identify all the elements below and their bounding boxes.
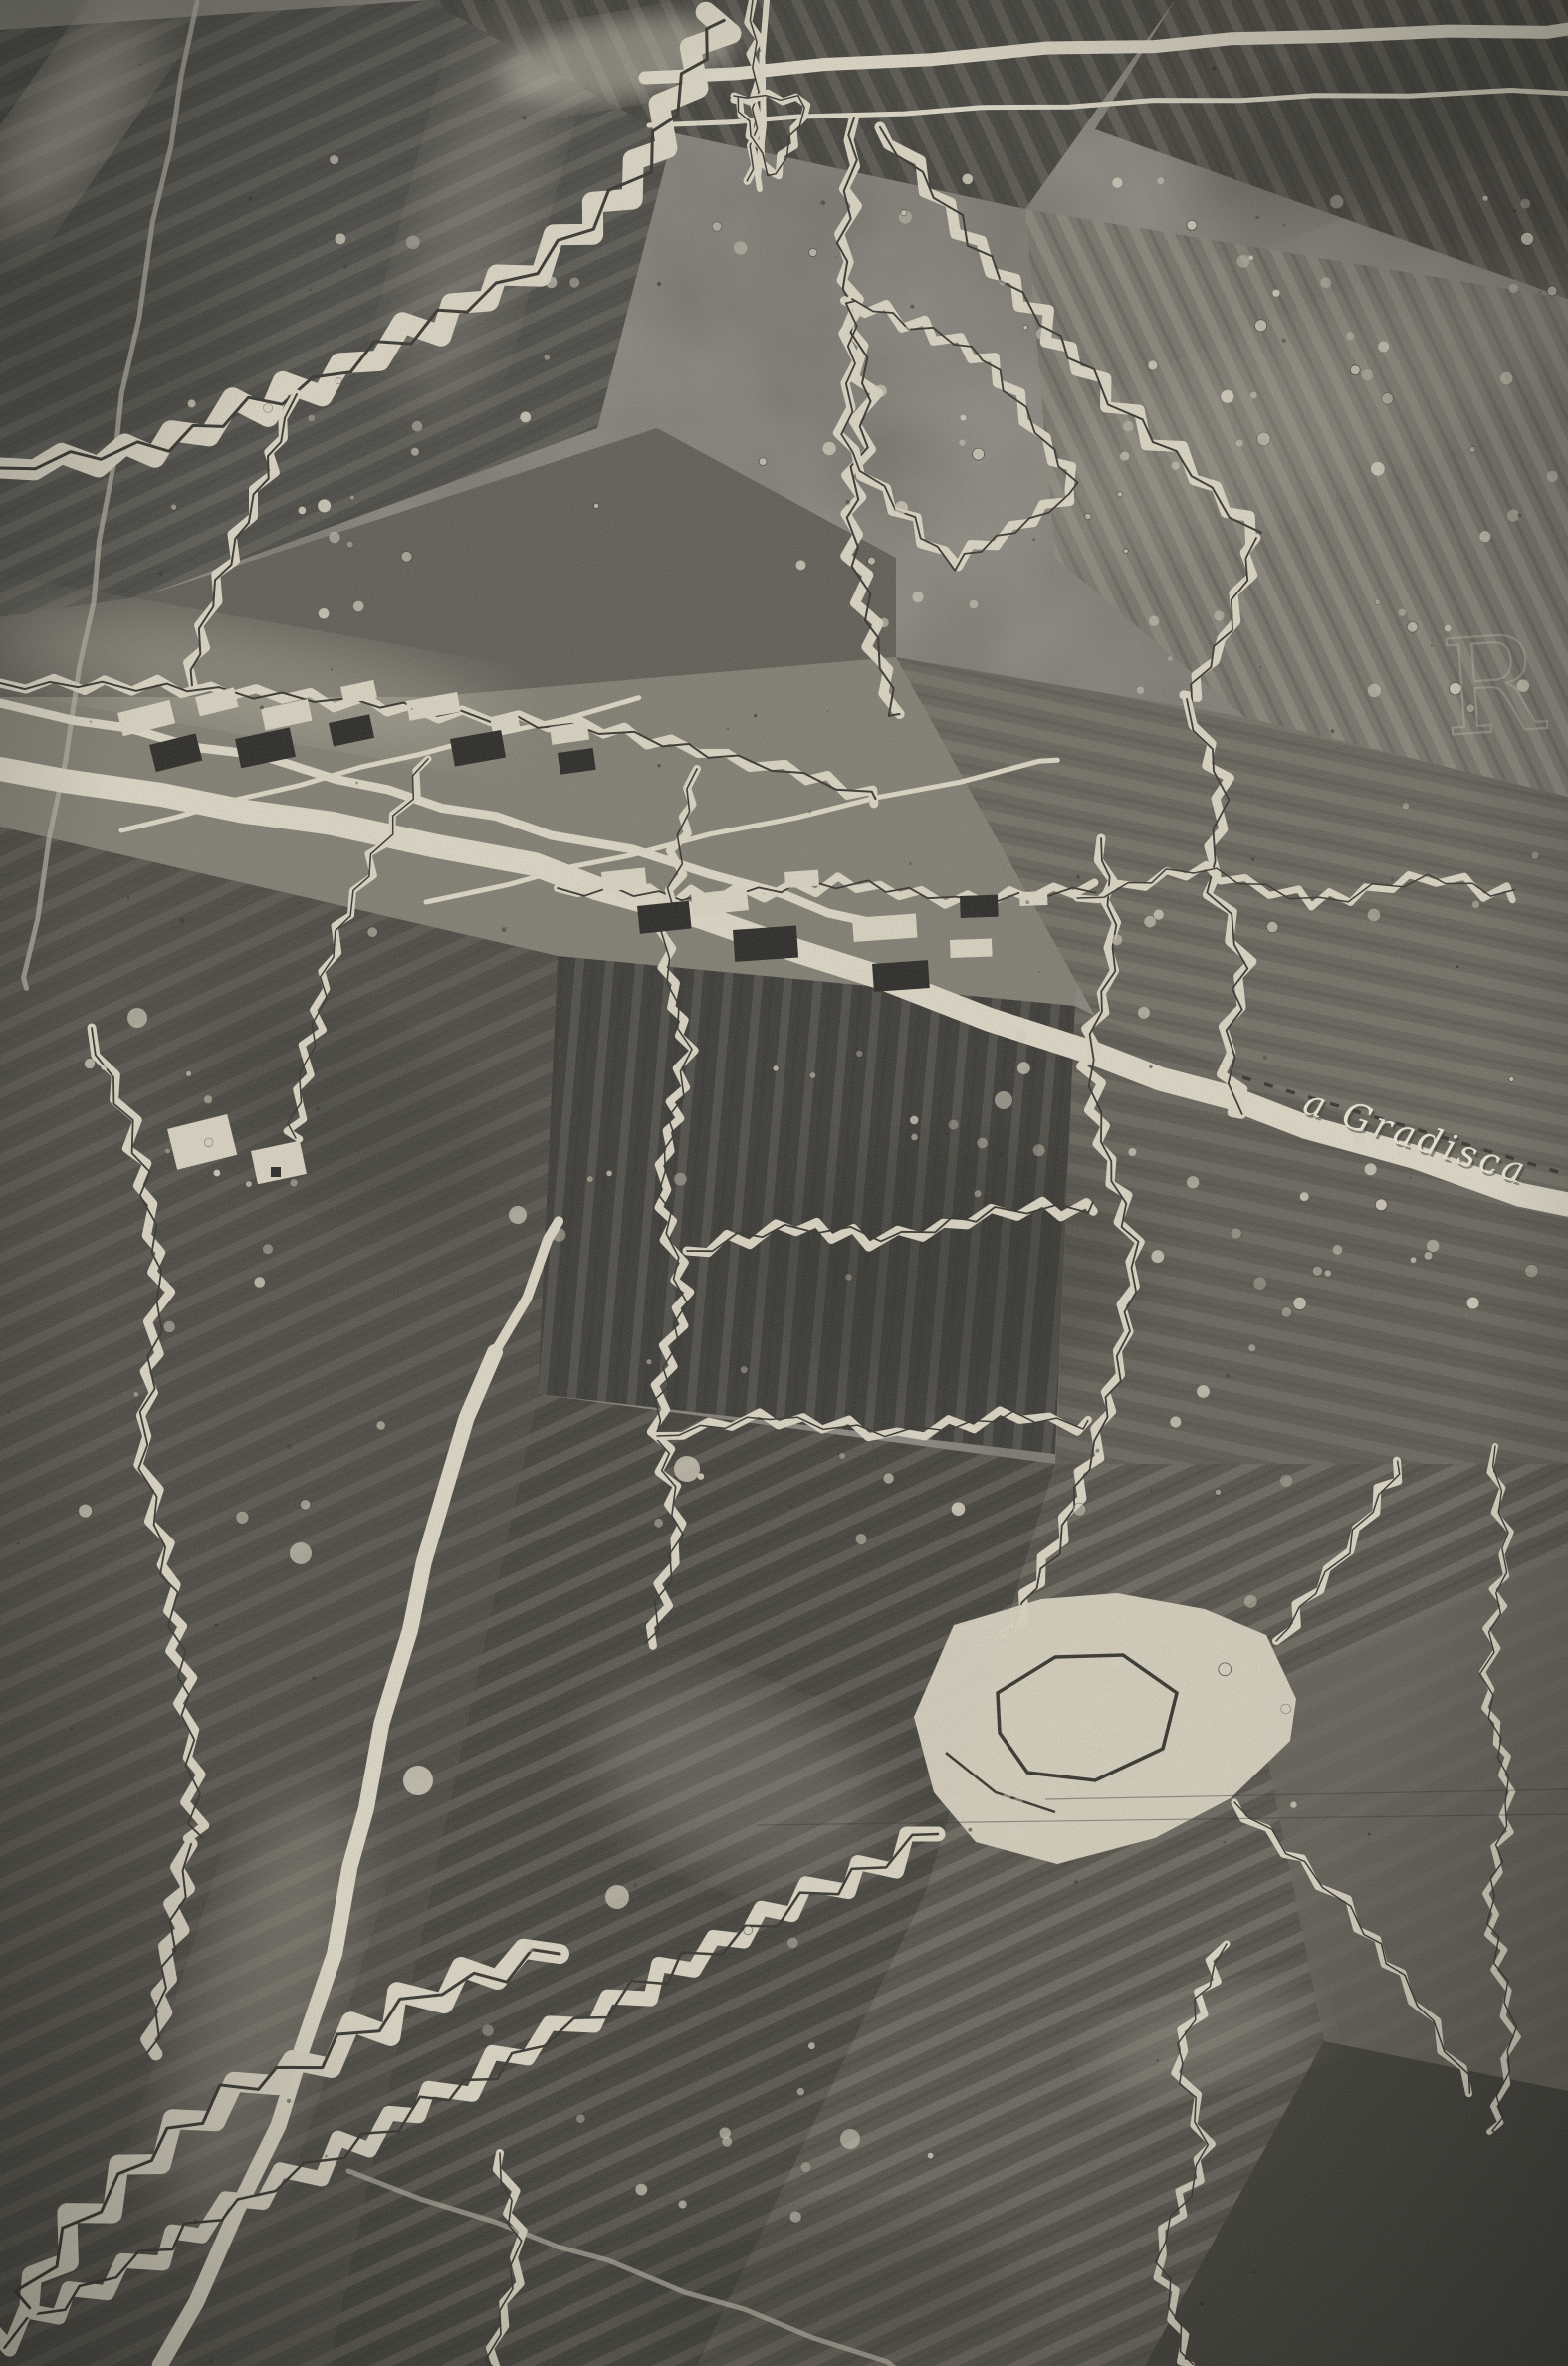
vignette <box>0 0 1568 2366</box>
photo-canvas: a Gradisca a Gradisca R <box>0 0 1568 2366</box>
aerial-photograph: a Gradisca a Gradisca R <box>0 0 1568 2366</box>
